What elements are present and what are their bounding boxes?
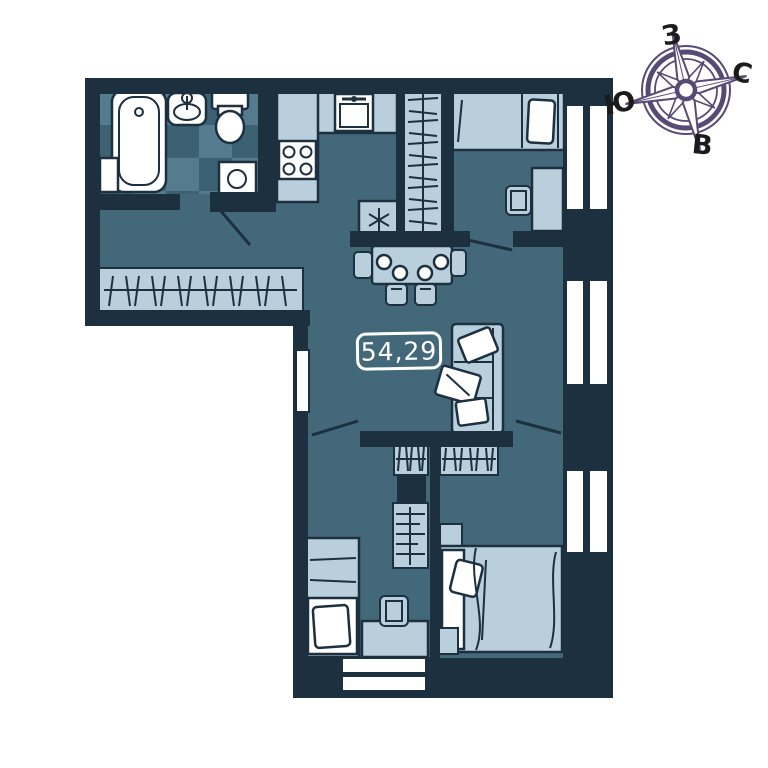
bathtub-icon <box>112 90 166 192</box>
bath-cabinet-icon <box>100 158 118 192</box>
dining-table-icon <box>372 246 452 284</box>
toilet-icon <box>212 92 248 143</box>
single-bed-icon <box>450 92 564 150</box>
washing-machine-icon <box>219 162 256 195</box>
area-value: 54,29 <box>360 336 437 366</box>
pillow-icon <box>455 398 488 426</box>
hallway-wardrobe-icon <box>98 268 303 312</box>
compass-letter-east: В <box>691 131 714 160</box>
kitchen-sink-icon <box>335 94 373 131</box>
sink-icon <box>168 93 206 125</box>
single-bed-icon <box>306 538 359 657</box>
chair-icon <box>380 596 408 626</box>
radiator-icon <box>296 350 309 412</box>
closet-icon <box>440 443 498 475</box>
compass-rose: З С Ю В <box>596 4 768 172</box>
chair-icon <box>506 186 531 215</box>
floor-plan-page: 54,29 <box>0 0 768 768</box>
nightstand-icon <box>438 628 458 654</box>
area-badge: 54,29 <box>356 331 443 370</box>
bookshelf-icon <box>393 503 428 568</box>
stove-icon <box>279 141 316 179</box>
compass-letter-south: Ю <box>602 87 639 120</box>
desk-icon <box>532 168 563 231</box>
wardrobe-top-icon <box>404 84 442 236</box>
